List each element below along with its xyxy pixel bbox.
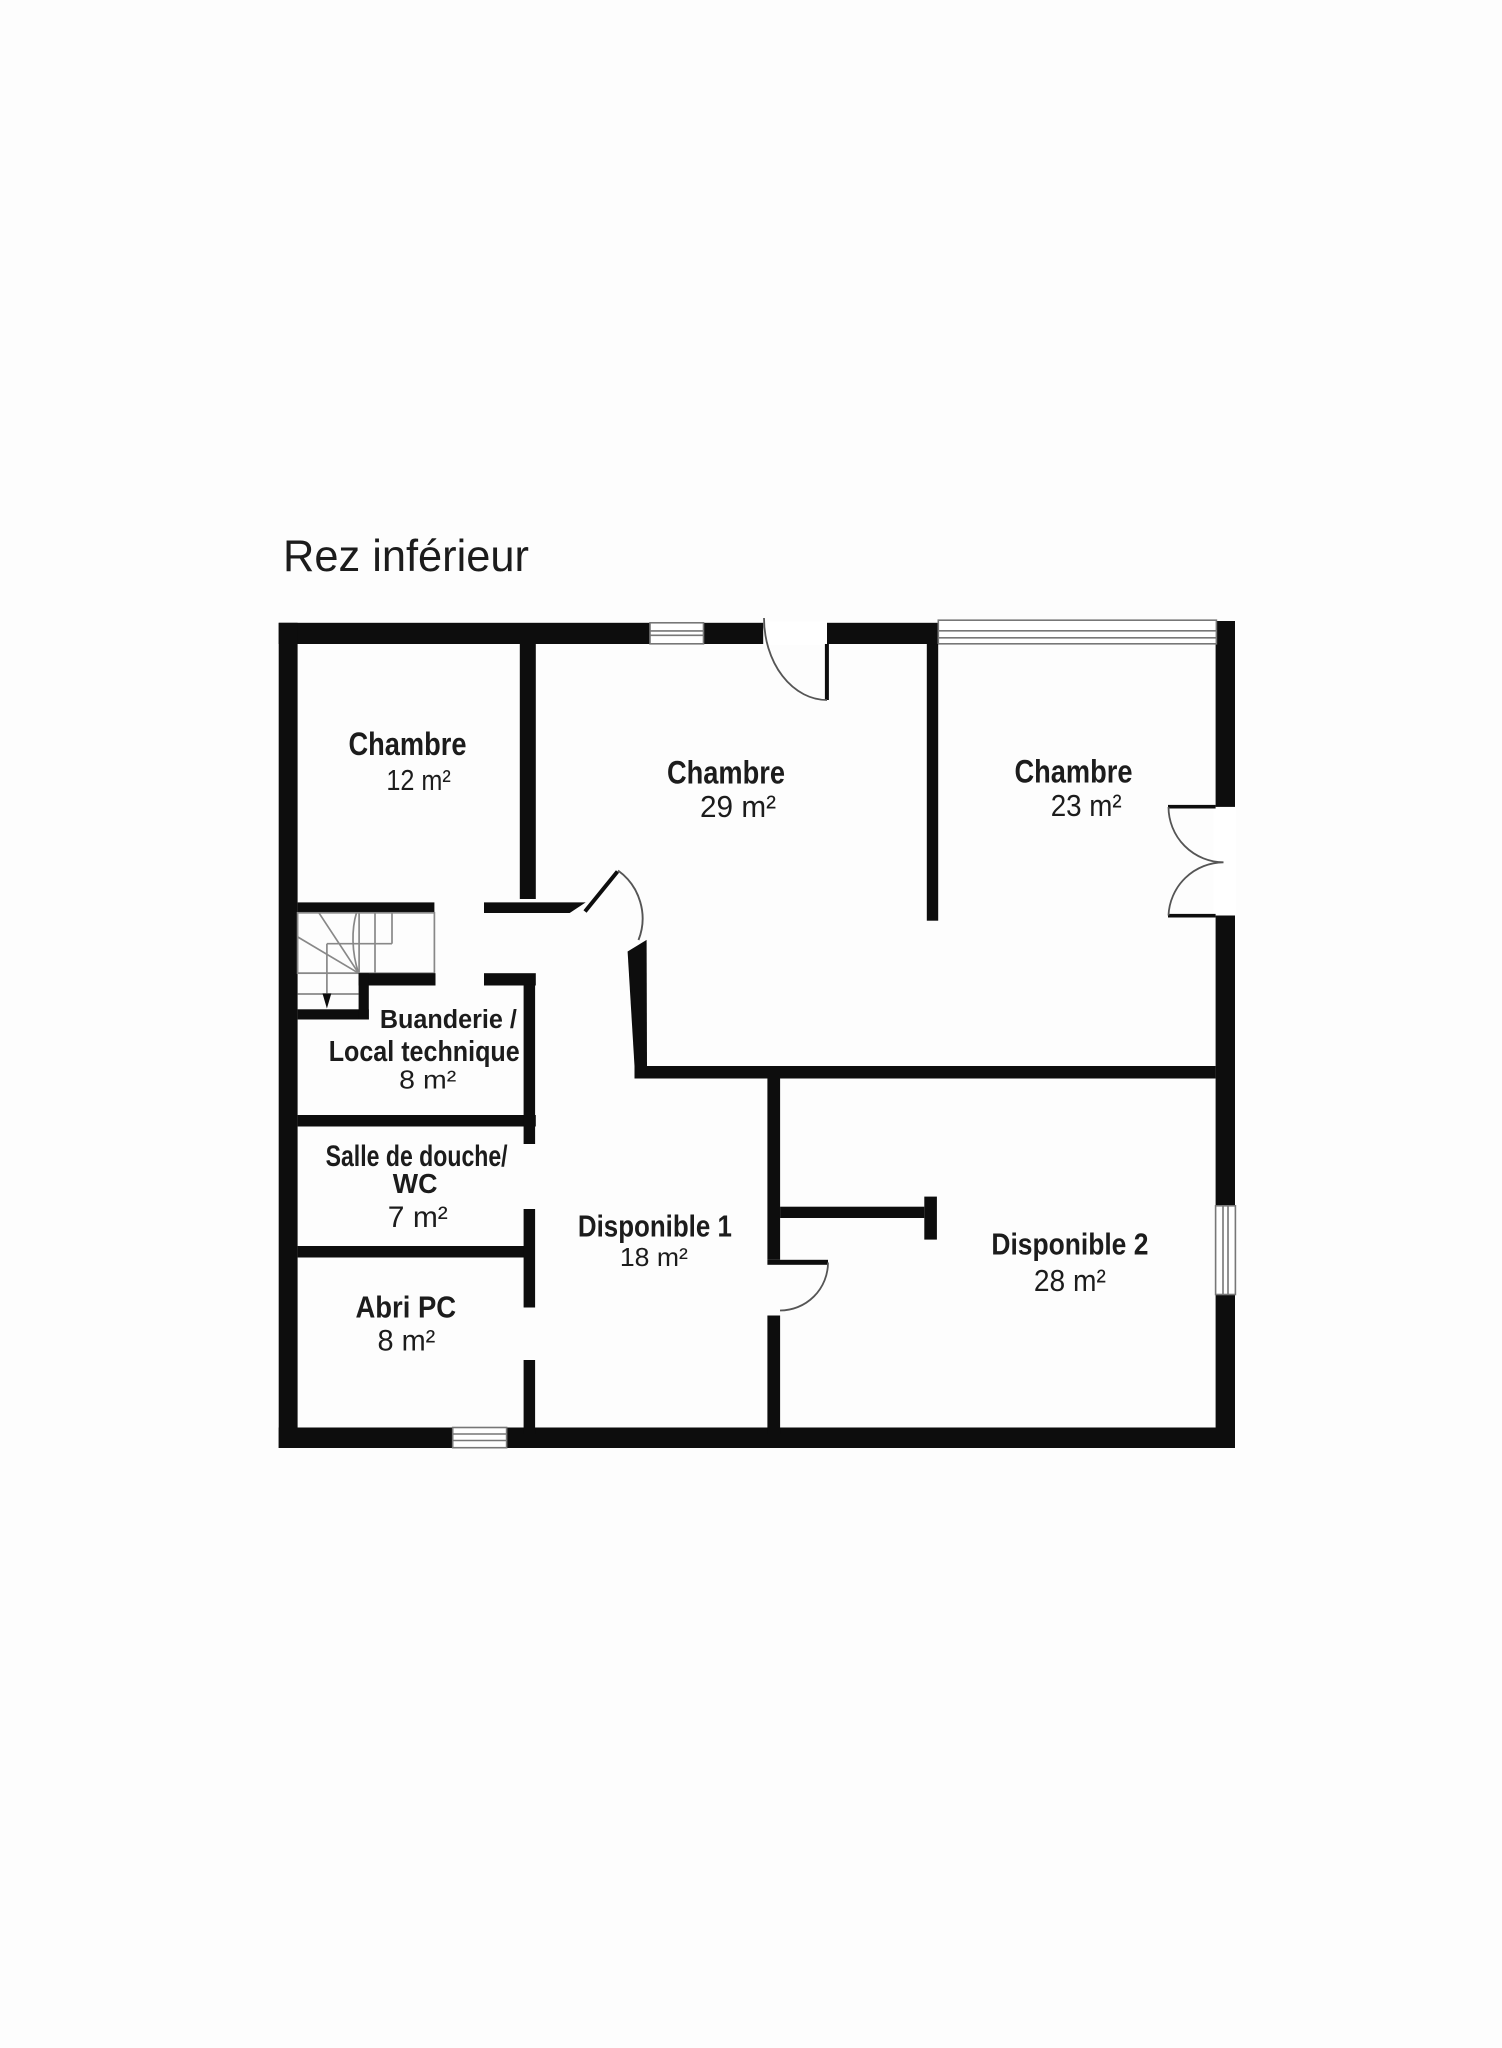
svg-text:8 m²: 8 m² [399, 1065, 456, 1095]
svg-text:8 m²: 8 m² [378, 1325, 436, 1358]
svg-text:Rez inférieur: Rez inférieur [283, 532, 529, 581]
svg-text:12 m²: 12 m² [386, 765, 451, 797]
svg-text:Chambre: Chambre [1015, 753, 1133, 789]
svg-text:28 m²: 28 m² [1034, 1264, 1106, 1298]
svg-text:Buanderie /: Buanderie / [380, 1004, 518, 1034]
svg-text:Local technique: Local technique [329, 1035, 520, 1067]
svg-text:18 m²: 18 m² [620, 1242, 688, 1272]
svg-text:29 m²: 29 m² [700, 790, 776, 824]
svg-text:Chambre: Chambre [349, 726, 467, 762]
svg-text:7 m²: 7 m² [388, 1201, 448, 1234]
svg-text:WC: WC [393, 1168, 438, 1199]
svg-text:Abri PC: Abri PC [355, 1290, 456, 1324]
svg-text:23 m²: 23 m² [1051, 789, 1122, 823]
svg-text:Disponible 2: Disponible 2 [991, 1226, 1148, 1261]
svg-text:Disponible 1: Disponible 1 [578, 1208, 732, 1243]
svg-text:Chambre: Chambre [667, 755, 785, 791]
